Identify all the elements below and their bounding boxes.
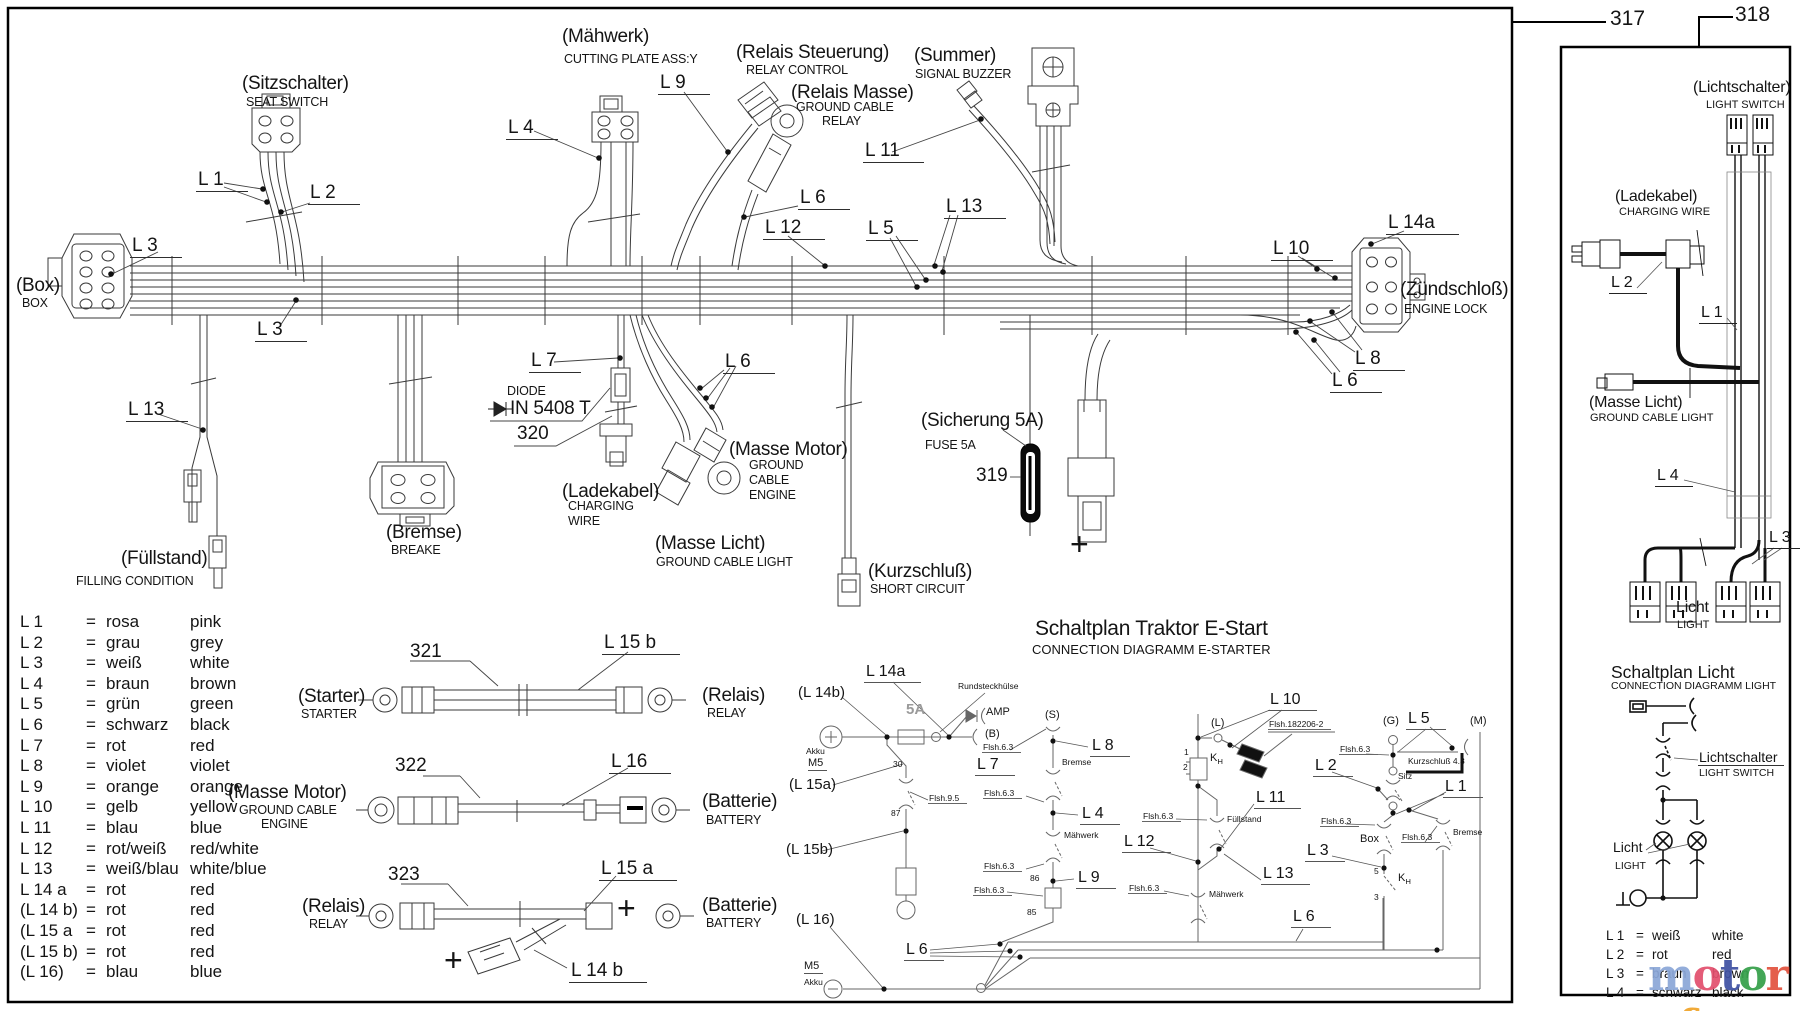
wire-l11: L 11 xyxy=(863,141,924,163)
panel-wire-l3: L 3 xyxy=(1767,530,1800,549)
legend-row: L 11 = blau blue xyxy=(20,818,267,839)
circuit-lichtschalter-de: Lichtschalter xyxy=(1698,750,1784,766)
sch-flsh1: Flsh.6.3 xyxy=(983,789,1022,799)
plus-sign-battery: + xyxy=(617,892,636,926)
sch-s-terminal: (S) xyxy=(1045,710,1060,722)
panel-charging-de: (Ladekabel) xyxy=(1615,189,1697,206)
label-ground-engine-de: (Masse Motor) xyxy=(729,440,848,460)
panel-light-switch-en: LIGHT SWITCH xyxy=(1706,100,1785,112)
legend-row: L 13 = weiß/blau white/blue xyxy=(20,859,267,880)
label-box-de: (Box) xyxy=(16,276,60,296)
ref-317: 317 xyxy=(1610,8,1645,30)
wire-l7: L 7 xyxy=(529,351,581,373)
ground-cable-relay xyxy=(732,105,803,270)
panel-wire-l2: L 2 xyxy=(1609,275,1647,294)
legend-row: L 4 = braun brown xyxy=(20,674,267,695)
sch-kh1: KH xyxy=(1210,753,1223,766)
schematic-title: Schaltplan Traktor E-Start xyxy=(1035,618,1268,640)
label-ground-engine-en1: GROUND xyxy=(749,459,803,472)
sch-flsh4: Flsh.6.3 xyxy=(1142,812,1181,822)
assembly-ref-322: 322 xyxy=(395,756,427,776)
legend-row: L 14 a = rot red xyxy=(20,880,267,901)
sch-n86: 86 xyxy=(1030,874,1039,883)
wire-l13-left: L 13 xyxy=(126,400,188,422)
label-short-circuit-en: SHORT CIRCUIT xyxy=(870,583,965,596)
label-starter-en: STARTER xyxy=(301,708,357,721)
sch-g-terminal: (G) xyxy=(1383,716,1399,728)
panel-ground-light-en: GROUND CABLE LIGHT xyxy=(1590,413,1713,425)
sch-n5: 5 xyxy=(1374,867,1379,876)
sch-m5-bottom: M5 xyxy=(804,961,823,974)
label-ground-light-en: GROUND CABLE LIGHT xyxy=(656,556,793,569)
circuit-lichtschalter-en: LIGHT SWITCH xyxy=(1699,768,1774,779)
label-filling-de: (Füllstand) xyxy=(121,549,207,569)
diode-symbol xyxy=(488,402,512,416)
legend-row: L 1 = rosa pink xyxy=(20,612,267,633)
label-box-en: BOX xyxy=(22,297,48,310)
sch-l9: L 9 xyxy=(1076,870,1116,889)
sch-fuellstand: Füllstand xyxy=(1227,815,1262,824)
sch-b-terminal: (B) xyxy=(985,729,1000,741)
label-diode-1: DIODE xyxy=(507,385,546,398)
label-brake-de: (Bremse) xyxy=(386,523,462,543)
wire-l10: L 10 xyxy=(1271,239,1333,261)
sch-bremse2: Bremse xyxy=(1453,828,1482,837)
watermark-letters: motoruf xyxy=(1648,950,1787,1011)
sch-flsh7: Flsh.6.3 xyxy=(1320,817,1359,827)
sch-5a: 5A xyxy=(906,702,925,718)
sch-maehwerk2: Mähwerk xyxy=(1209,890,1243,899)
panel-charging-en: CHARGING WIRE xyxy=(1619,207,1710,219)
label-fuse-ref-319: 319 xyxy=(976,466,1008,486)
label-ground-light-de: (Masse Licht) xyxy=(655,534,765,554)
label-ground-engine2-en2: ENGINE xyxy=(261,818,308,831)
label-relay-control-de: (Relais Steuerung) xyxy=(736,43,889,63)
label-brake-en: BREAKE xyxy=(391,544,441,557)
sch-m5-top: M5 xyxy=(808,758,827,771)
wire-l13-top: L 13 xyxy=(944,197,1006,219)
panel-ground-light-de: (Masse Licht) xyxy=(1589,395,1682,412)
cable-ties xyxy=(172,256,1288,335)
label-relais1-en: RELAY xyxy=(707,707,746,720)
sch-flsh95: Flsh.9.5 xyxy=(928,794,967,804)
sch-l5: L 5 xyxy=(1406,711,1446,730)
main-harness-band xyxy=(130,266,1352,329)
label-starter-de: (Starter) xyxy=(298,687,365,707)
legend-row: L 2 = grau grey xyxy=(20,633,267,654)
ground-cables-engine-light xyxy=(630,315,740,505)
sch-n85: 85 xyxy=(1027,908,1036,917)
sch-l-terminal: (L) xyxy=(1211,718,1224,730)
schematic-subtitle: CONNECTION DIAGRAMM E-STARTER xyxy=(1032,643,1271,657)
label-relais1-de: (Relais) xyxy=(702,686,765,706)
label-battery1-de: (Batterie) xyxy=(702,792,777,812)
wire-l9: L 9 xyxy=(658,73,710,95)
sch-kurzschluss48: Kurzschluß 4.8 xyxy=(1408,757,1465,766)
sch-l4: L 4 xyxy=(1080,806,1120,825)
label-ground-engine-en3: ENGINE xyxy=(749,489,796,502)
label-cutting-plate-en: CUTTING PLATE ASS:Y xyxy=(564,53,698,66)
sch-flsh-b: Flsh.6.3 xyxy=(982,743,1021,753)
panel-circuit-subtitle: CONNECTION DIAGRAMM LIGHT xyxy=(1611,681,1776,692)
sch-bremse1: Bremse xyxy=(1062,758,1091,767)
leader-lines xyxy=(112,92,1404,968)
circuit-licht-de: Licht xyxy=(1613,840,1643,855)
panel-art xyxy=(1572,115,1782,906)
sch-rundsteckhuelse: Rundsteckhülse xyxy=(958,682,1018,691)
label-engine-lock-de: (Zündschloß) xyxy=(1400,280,1508,300)
legend-row: L 8 = violet violet xyxy=(20,756,267,777)
sch-l11: L 11 xyxy=(1254,790,1301,809)
sch-n2: 2 xyxy=(1183,763,1188,772)
wire-l5: L 5 xyxy=(866,219,918,241)
estart-dots xyxy=(881,734,1454,991)
sch-l6: L 6 xyxy=(904,942,944,961)
wire-l6-diode: L 6 xyxy=(723,352,775,374)
label-ground-engine-en2: CABLE xyxy=(749,474,789,487)
sch-l15a: (L 15a) xyxy=(789,777,836,793)
assembly-321 xyxy=(358,684,686,716)
sch-flsh2: Flsh.6.3 xyxy=(983,862,1022,872)
sch-l3: L 3 xyxy=(1305,843,1345,862)
sch-flsh3: Flsh.6.3 xyxy=(973,886,1012,896)
wire-l15a: L 15 a xyxy=(599,859,677,881)
motoruf-watermark: motoruf.de xyxy=(1648,950,1800,1011)
sch-l10: L 10 xyxy=(1268,692,1317,711)
label-ground-cable-relay-en1: GROUND CABLE xyxy=(796,101,894,114)
wire-l6-relay: L 6 xyxy=(798,188,850,210)
legend-row: (L 15 b) = rot red xyxy=(20,942,267,963)
short-circuit-wire xyxy=(836,315,862,606)
sch-n1: 1 xyxy=(1184,748,1189,757)
label-ground-cable-relay-en2: RELAY xyxy=(822,115,861,128)
sch-box: Box xyxy=(1360,834,1379,846)
legend-row: L 12 = rot/weiß red/white xyxy=(20,839,267,860)
label-battery2-en: BATTERY xyxy=(706,917,761,930)
legend-row: L 7 = rot red xyxy=(20,736,267,757)
relay-control-plug xyxy=(671,82,781,270)
sch-l14a: L 14a xyxy=(864,664,921,683)
sch-sitz: Sitz xyxy=(1398,772,1412,781)
label-engine-lock-en: ENGINE LOCK xyxy=(1404,303,1487,316)
sch-l13: L 13 xyxy=(1261,866,1310,885)
wire-l4: L 4 xyxy=(506,118,558,140)
label-seat-switch-en: SEAT SWITCH xyxy=(246,96,328,109)
sch-akku-bottom: Akku xyxy=(804,978,823,987)
legend-row: (L 14 b) = rot red xyxy=(20,900,267,921)
sch-l2: L 2 xyxy=(1313,758,1353,777)
label-buzzer-de: (Summer) xyxy=(914,46,996,66)
label-battery2-de: (Batterie) xyxy=(702,896,777,916)
ref-318: 318 xyxy=(1735,4,1770,26)
sch-n30: 30 xyxy=(893,760,902,769)
legend-row: (L 16) = blau blue xyxy=(20,962,267,983)
wire-l1: L 1 xyxy=(196,170,248,192)
panel-wire-l1: L 1 xyxy=(1699,305,1737,324)
panel-legend-row: L 1 = weiß white xyxy=(1606,928,1749,947)
sch-akku-top: Akku xyxy=(806,747,825,756)
label-charging-wire-en2: WIRE xyxy=(568,515,600,528)
label-fuse-en: FUSE 5A xyxy=(925,439,976,452)
sch-flsh8: Flsh.6.3 xyxy=(1401,833,1440,843)
label-charging-wire-en1: CHARGING xyxy=(568,500,634,513)
sch-l1: L 1 xyxy=(1443,779,1483,798)
label-relais2-de: (Relais) xyxy=(302,897,365,917)
wire-l14b: L 14 b xyxy=(569,961,647,983)
panel-wire-l4: L 4 xyxy=(1655,468,1693,487)
panel-light-switch-de: (Lichtschalter) xyxy=(1693,80,1790,97)
label-fuse-de: (Sicherung 5A) xyxy=(921,411,1044,431)
sch-maehwerk1: Mähwerk xyxy=(1064,831,1098,840)
wire-l3-box: L 3 xyxy=(130,236,182,258)
big-connector xyxy=(1068,334,1114,542)
bracket-component xyxy=(1028,48,1078,266)
sch-n87: 87 xyxy=(891,809,900,818)
assembly-ref-321: 321 xyxy=(410,642,442,662)
sch-l15b: (L 15b) xyxy=(786,842,833,858)
plus-sign-connector: + xyxy=(1070,528,1089,562)
label-relais2-en: RELAY xyxy=(309,918,348,931)
wire-color-legend: L 1 = rosa pink L 2 = grau grey L 3 = we… xyxy=(20,612,267,983)
legend-row: L 9 = orange orange xyxy=(20,777,267,798)
wire-l8: L 8 xyxy=(1353,349,1405,371)
sch-n3: 3 xyxy=(1374,893,1379,902)
sch-l16: (L 16) xyxy=(796,912,835,928)
legend-row: (L 15 a = rot red xyxy=(20,921,267,942)
sch-m-terminal: (M) xyxy=(1470,716,1487,728)
wire-l6-right: L 6 xyxy=(1330,371,1382,393)
cutting-plate-branch xyxy=(567,96,640,266)
sch-flsh5: Flsh.6.3 xyxy=(1128,884,1167,894)
assembly-322 xyxy=(356,797,690,824)
panel-licht-de: Licht xyxy=(1676,600,1709,617)
sch-l12: L 12 xyxy=(1122,834,1171,853)
wire-l16: L 16 xyxy=(609,752,671,774)
wire-l15b: L 15 b xyxy=(602,633,680,655)
wiring-diagram-page: 317 318 (Box) BOX (Sitzschalter) SEAT SW… xyxy=(0,0,1800,1011)
sch-l7: L 7 xyxy=(975,757,1015,776)
label-battery1-en: BATTERY xyxy=(706,814,761,827)
assembly-ref-323: 323 xyxy=(388,865,420,885)
label-cutting-plate-de: (Mähwerk) xyxy=(562,27,649,47)
sch-amp: AMP xyxy=(986,707,1010,719)
sch-l8: L 8 xyxy=(1090,738,1130,757)
label-filling-en: FILLING CONDITION xyxy=(76,575,193,588)
sch-l14b: (L 14b) xyxy=(798,685,845,701)
plus-sign-323: + xyxy=(444,944,463,978)
legend-row: L 5 = grün green xyxy=(20,694,267,715)
box-connector xyxy=(48,234,132,318)
sch-flsh6: Flsh.6.3 xyxy=(1339,745,1378,755)
wire-l12: L 12 xyxy=(763,218,825,240)
sch-l6-right: L 6 xyxy=(1291,909,1331,928)
wire-l2: L 2 xyxy=(308,183,360,205)
circuit-licht-en: LIGHT xyxy=(1615,861,1646,872)
sch-flsh182: Flsh.182206-2 xyxy=(1268,720,1331,730)
legend-row: L 6 = schwarz black xyxy=(20,715,267,736)
wire-l14a: L 14a xyxy=(1386,213,1459,235)
label-buzzer-en: SIGNAL BUZZER xyxy=(915,68,1011,81)
label-short-circuit-de: (Kurzschluß) xyxy=(868,562,972,582)
label-seat-switch-de: (Sitzschalter) xyxy=(242,74,349,94)
label-diode-ref-320: 320 xyxy=(517,424,549,444)
wire-l3-mid: L 3 xyxy=(255,320,307,342)
panel-circuit-title: Schaltplan Licht xyxy=(1611,663,1735,681)
sch-kh2: KH xyxy=(1398,873,1411,886)
label-relay-control-en: RELAY CONTROL xyxy=(746,64,848,77)
legend-row: L 3 = weiß white xyxy=(20,653,267,674)
label-diode-2: IN 5408 T xyxy=(510,399,590,419)
diode-column xyxy=(600,315,637,466)
leader-dots xyxy=(108,116,1374,433)
brake-branch xyxy=(370,315,454,526)
panel-licht-en: LIGHT xyxy=(1677,620,1709,632)
legend-row: L 10 = gelb yellow xyxy=(20,797,267,818)
